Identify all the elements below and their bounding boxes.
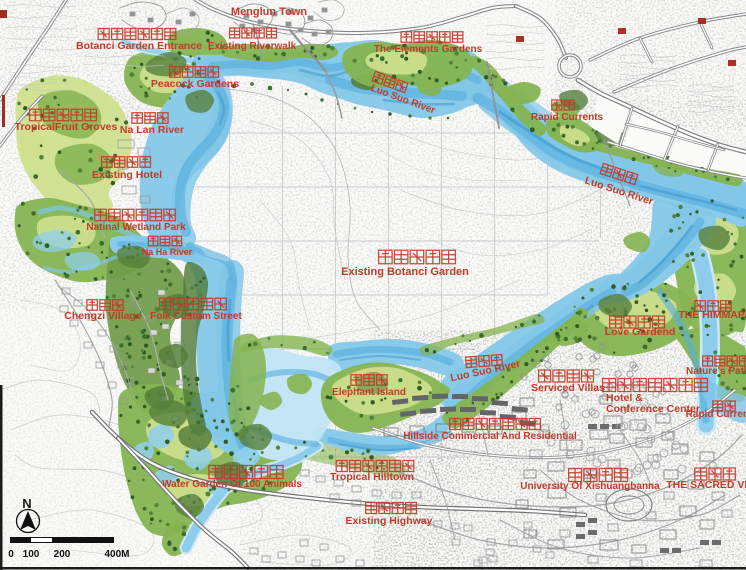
svg-text:Botanci Garden Entrance: Botanci Garden Entrance	[76, 40, 202, 52]
svg-text:THE HIMMAPA: THE HIMMAPA	[678, 309, 746, 321]
svg-text:Existing Hotel: Existing Hotel	[92, 169, 162, 181]
svg-text:TropicalFruit Groves: TropicalFruit Groves	[15, 121, 118, 133]
svg-text:THE SACRED VIL: THE SACRED VIL	[666, 479, 746, 491]
svg-text:Love Gardend: Love Gardend	[605, 326, 676, 338]
svg-text:Chengzi Village: Chengzi Village	[64, 310, 142, 322]
svg-text:100: 100	[23, 549, 40, 560]
svg-text:Existing Botanci Garden: Existing Botanci Garden	[341, 266, 469, 278]
svg-text:Tropical Hilltown: Tropical Hilltown	[330, 471, 414, 483]
svg-text:Existing Riverwalk: Existing Riverwalk	[208, 41, 297, 52]
svg-text:0: 0	[8, 549, 14, 560]
svg-text:Peacock Gardens: Peacock Gardens	[151, 78, 239, 90]
svg-text:Elephant Island: Elephant Island	[332, 387, 406, 398]
svg-text:Nature's Path: Nature's Path	[686, 366, 746, 377]
svg-text:Menglun Town: Menglun Town	[231, 6, 307, 18]
svg-text:Folk Custom Street: Folk Custom Street	[150, 311, 242, 322]
svg-text:Existing Highway: Existing Highway	[346, 515, 433, 527]
svg-text:Na Ha River: Na Ha River	[142, 247, 193, 257]
svg-text:Natinal Wetland Park: Natinal Wetland Park	[86, 222, 186, 233]
svg-text:Hillside Commercial And Reside: Hillside Commercial And Residential	[403, 431, 577, 442]
svg-text:Na Lan River: Na Lan River	[120, 124, 184, 136]
svg-text:Serviced Villas: Serviced Villas	[531, 382, 605, 394]
svg-text:Rapid Current: Rapid Current	[686, 409, 746, 420]
svg-text:University Of Xishuangbanna: University Of Xishuangbanna	[520, 481, 660, 492]
svg-text:Water Garden Of 100 Animals: Water Garden Of 100 Animals	[162, 479, 302, 490]
svg-text:The Elements Gardens: The Elements Gardens	[374, 44, 483, 55]
svg-text:N: N	[22, 496, 31, 511]
svg-text:Rapid Currents: Rapid Currents	[531, 112, 604, 123]
svg-text:400M: 400M	[104, 549, 129, 560]
svg-text:200: 200	[54, 549, 71, 560]
